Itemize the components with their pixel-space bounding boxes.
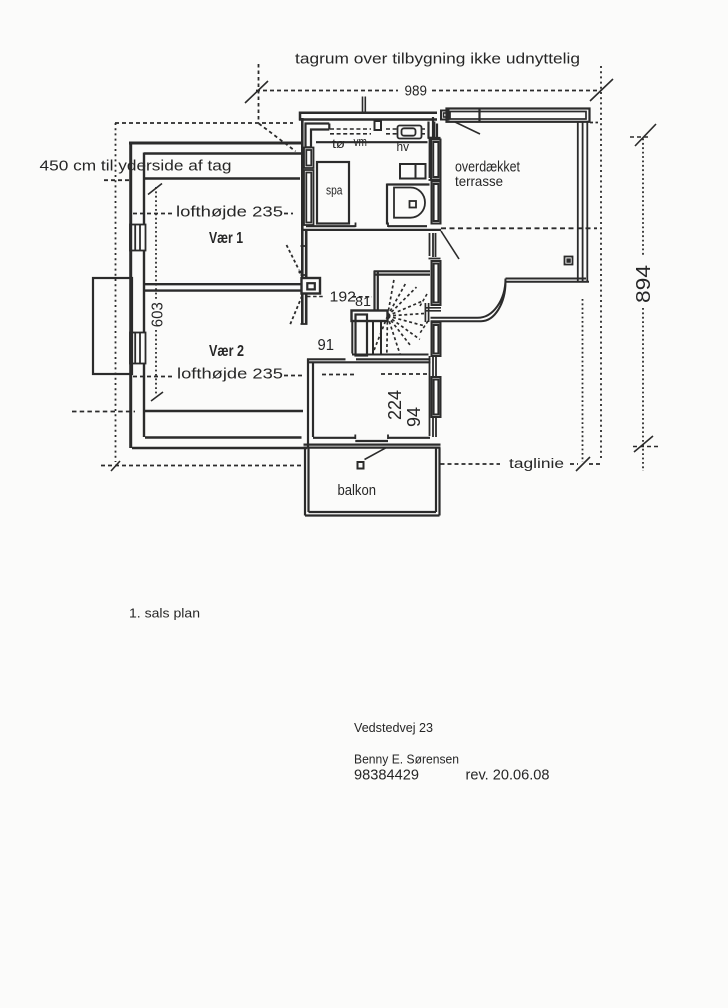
svg-text:450 cm til yderside af tag: 450 cm til yderside af tag (40, 158, 232, 175)
svg-text:94: 94 (404, 407, 424, 427)
svg-text:98384429: 98384429 (354, 768, 419, 784)
svg-text:Vedstedvej 23: Vedstedvej 23 (354, 721, 433, 735)
svg-text:tø: tø (332, 136, 345, 151)
svg-text:224: 224 (385, 390, 405, 420)
svg-text:spa: spa (326, 183, 343, 198)
svg-text:lofthøjde 235: lofthøjde 235 (177, 366, 283, 383)
svg-text:tagrum over tilbygning ikke ud: tagrum over tilbygning ikke udnyttelig (295, 51, 580, 68)
svg-text:603: 603 (149, 302, 166, 327)
svg-text:Vær 1: Vær 1 (209, 230, 243, 247)
svg-text:vm: vm (354, 134, 368, 149)
svg-text:hv: hv (397, 139, 410, 154)
svg-text:taglinie: taglinie (509, 456, 564, 471)
svg-text:989: 989 (405, 84, 428, 100)
svg-text:rev. 20.06.08: rev. 20.06.08 (466, 768, 550, 784)
svg-text:Benny E. Sørensen: Benny E. Sørensen (354, 753, 459, 767)
svg-text:894: 894 (633, 265, 655, 303)
svg-text:Vær 2: Vær 2 (209, 343, 244, 360)
svg-text:91: 91 (318, 337, 335, 354)
svg-text:lofthøjde 235: lofthøjde 235 (176, 204, 283, 221)
svg-text:balkon: balkon (338, 482, 377, 499)
svg-text:terrasse: terrasse (455, 173, 503, 189)
svg-text:1. sals plan: 1. sals plan (129, 605, 200, 620)
